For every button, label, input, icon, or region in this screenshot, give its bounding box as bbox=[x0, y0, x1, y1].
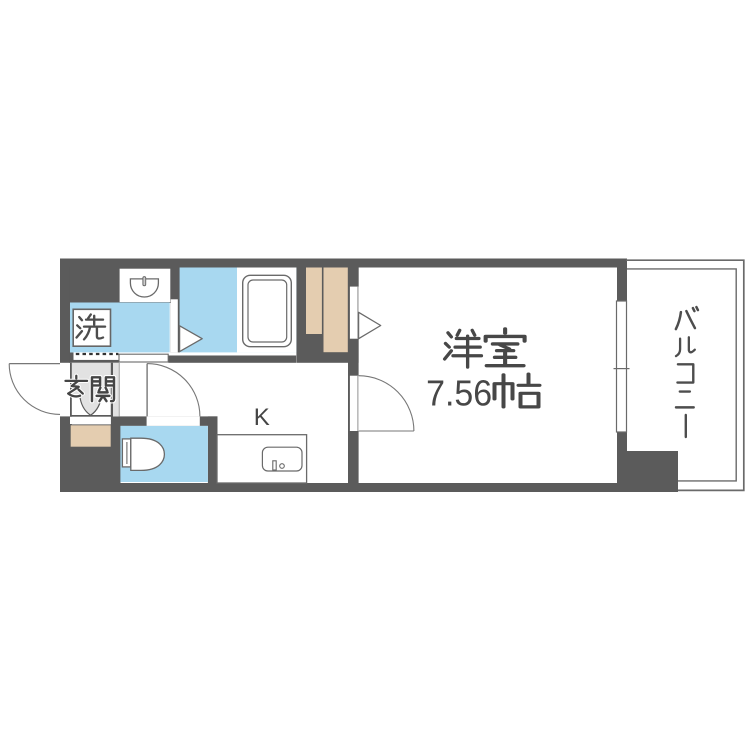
svg-text:K: K bbox=[254, 404, 270, 431]
svg-text:7.56: 7.56 bbox=[426, 373, 492, 414]
